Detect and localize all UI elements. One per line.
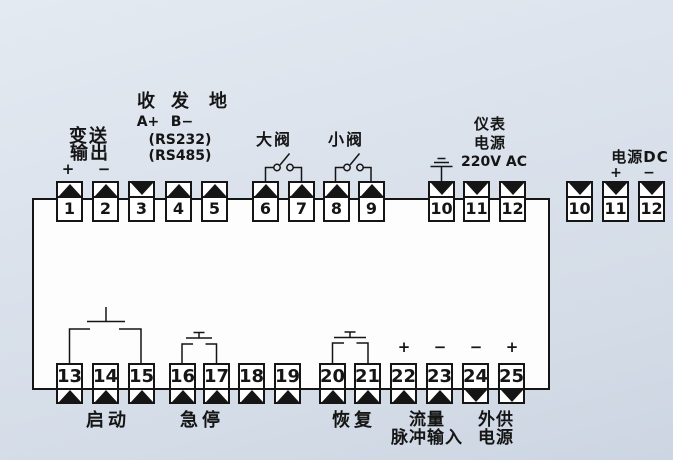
arrow-up-icon: [358, 181, 385, 198]
arrow-up-icon: [288, 181, 315, 198]
label-flow-line1: 流量: [409, 412, 445, 429]
label-meter-power-line1: 仪表: [474, 117, 506, 132]
terminal-24: 24: [462, 363, 489, 404]
terminal-number: 22: [390, 363, 417, 390]
label-rs232: (RS232): [149, 133, 212, 147]
terminal-12: 12: [499, 181, 526, 222]
label-220v-ac: 220V AC: [461, 155, 527, 169]
terminal-number: 18: [238, 363, 265, 390]
terminal-5: 5: [201, 181, 228, 222]
terminal-19: 19: [274, 363, 301, 404]
terminal-1: 1: [56, 181, 83, 222]
label-send: 发: [171, 93, 191, 111]
big-valve-switch-icon: [266, 154, 302, 183]
terminal-number: 24: [462, 363, 489, 390]
arrow-up-icon: [169, 388, 196, 404]
terminal-number: 3: [128, 196, 155, 222]
terminal-number: 2: [92, 196, 119, 222]
terminal-number: 23: [426, 363, 453, 390]
terminal-21: 21: [354, 363, 381, 404]
terminal-number: 25: [498, 363, 525, 390]
label-estop: 急停: [180, 412, 224, 430]
terminal-13: 13: [56, 363, 83, 404]
terminal-6: 6: [252, 181, 279, 222]
terminal-22: 22: [390, 363, 417, 404]
arrow-up-icon: [323, 181, 350, 198]
terminal-number: 7: [288, 196, 315, 222]
terminal-number: 13: [56, 363, 83, 390]
label-meter-power-line2: 电源: [474, 136, 506, 151]
arrow-up-icon: [203, 388, 230, 404]
estop-pushbutton-icon: [182, 333, 217, 365]
polarity-plus-terminal-25: +: [506, 340, 519, 355]
terminal-number: 19: [274, 363, 301, 390]
arrow-up-icon: [201, 181, 228, 198]
terminal-number: 16: [169, 363, 196, 390]
arrow-up-icon: [319, 388, 346, 404]
terminal-2: 2: [92, 181, 119, 222]
small-valve-switch-icon: [336, 154, 372, 183]
dc-terminal-11: 11: [602, 181, 629, 222]
polarity-plus-dc-11: +: [610, 166, 622, 180]
earth-ground-icon: [431, 159, 453, 183]
arrow-up-icon: [92, 388, 119, 404]
polarity-plus-terminal-1: +: [62, 162, 75, 177]
terminal-number: 17: [203, 363, 230, 390]
dc-terminal-10: 10: [566, 181, 593, 222]
terminal-number: 20: [319, 363, 346, 390]
label-ext-power-line1: 外供: [478, 412, 514, 429]
polarity-minus-terminal-24: −: [470, 340, 483, 355]
terminal-18: 18: [238, 363, 265, 404]
label-start: 启动: [86, 412, 130, 430]
arrow-up-icon: [390, 388, 417, 404]
arrow-up-icon: [165, 181, 192, 198]
polarity-minus-dc-12: −: [643, 166, 655, 180]
terminal-17: 17: [203, 363, 230, 404]
wiring-diagram: 1 2 3 4 5 6 7 8 9 10 11 12: [0, 0, 673, 460]
label-ext-power-line2: 电源: [478, 430, 514, 447]
arrow-up-icon: [92, 181, 119, 198]
polarity-minus-terminal-23: −: [434, 340, 447, 355]
arrow-up-icon: [354, 388, 381, 404]
terminal-number: 12: [499, 196, 526, 222]
terminal-20: 20: [319, 363, 346, 404]
terminal-14: 14: [92, 363, 119, 404]
label-rs485: (RS485): [149, 149, 212, 163]
terminal-15: 15: [128, 363, 155, 404]
arrow-up-icon: [252, 181, 279, 198]
terminal-number: 12: [638, 196, 665, 222]
terminal-8: 8: [323, 181, 350, 222]
label-big-valve: 大阀: [256, 132, 292, 148]
resume-pushbutton-icon: [333, 332, 369, 364]
terminal-3: 3: [128, 181, 155, 222]
arrow-up-icon: [238, 388, 265, 404]
label-power-dc: 电源DC: [611, 150, 668, 165]
polarity-minus-terminal-2: −: [98, 162, 111, 177]
terminal-10: 10: [428, 181, 455, 222]
label-resume: 恢复: [332, 412, 376, 430]
arrow-up-icon: [274, 388, 301, 404]
terminal-number: 11: [602, 196, 629, 222]
arrow-down-icon: [462, 388, 489, 404]
label-a-plus: A+: [137, 115, 160, 129]
label-ground: 地: [209, 93, 229, 111]
terminal-11: 11: [463, 181, 490, 222]
terminal-7: 7: [288, 181, 315, 222]
terminal-number: 6: [252, 196, 279, 222]
terminal-16: 16: [169, 363, 196, 404]
terminal-23: 23: [426, 363, 453, 404]
terminal-number: 1: [56, 196, 83, 222]
label-small-valve: 小阀: [328, 132, 364, 148]
terminal-number: 5: [201, 196, 228, 222]
terminal-number: 4: [165, 196, 192, 222]
terminal-25: 25: [498, 363, 525, 404]
polarity-plus-terminal-22: +: [398, 340, 411, 355]
terminal-number: 8: [323, 196, 350, 222]
terminal-number: 10: [566, 196, 593, 222]
terminal-number: 11: [463, 196, 490, 222]
arrow-up-icon: [426, 388, 453, 404]
terminal-4: 4: [165, 181, 192, 222]
arrow-up-icon: [128, 388, 155, 404]
arrow-down-icon: [498, 388, 525, 404]
terminal-9: 9: [358, 181, 385, 222]
terminal-number: 21: [354, 363, 381, 390]
arrow-up-icon: [56, 181, 83, 198]
arrow-up-icon: [56, 388, 83, 404]
dc-terminal-12: 12: [638, 181, 665, 222]
label-flow-line2: 脉冲输入: [391, 430, 463, 447]
terminal-number: 10: [428, 196, 455, 222]
start-pushbutton-icon: [70, 307, 142, 364]
terminal-number: 14: [92, 363, 119, 390]
terminal-number: 9: [358, 196, 385, 222]
label-recv: 收: [137, 93, 157, 111]
label-b-minus: B−: [171, 115, 193, 129]
terminal-number: 15: [128, 363, 155, 390]
